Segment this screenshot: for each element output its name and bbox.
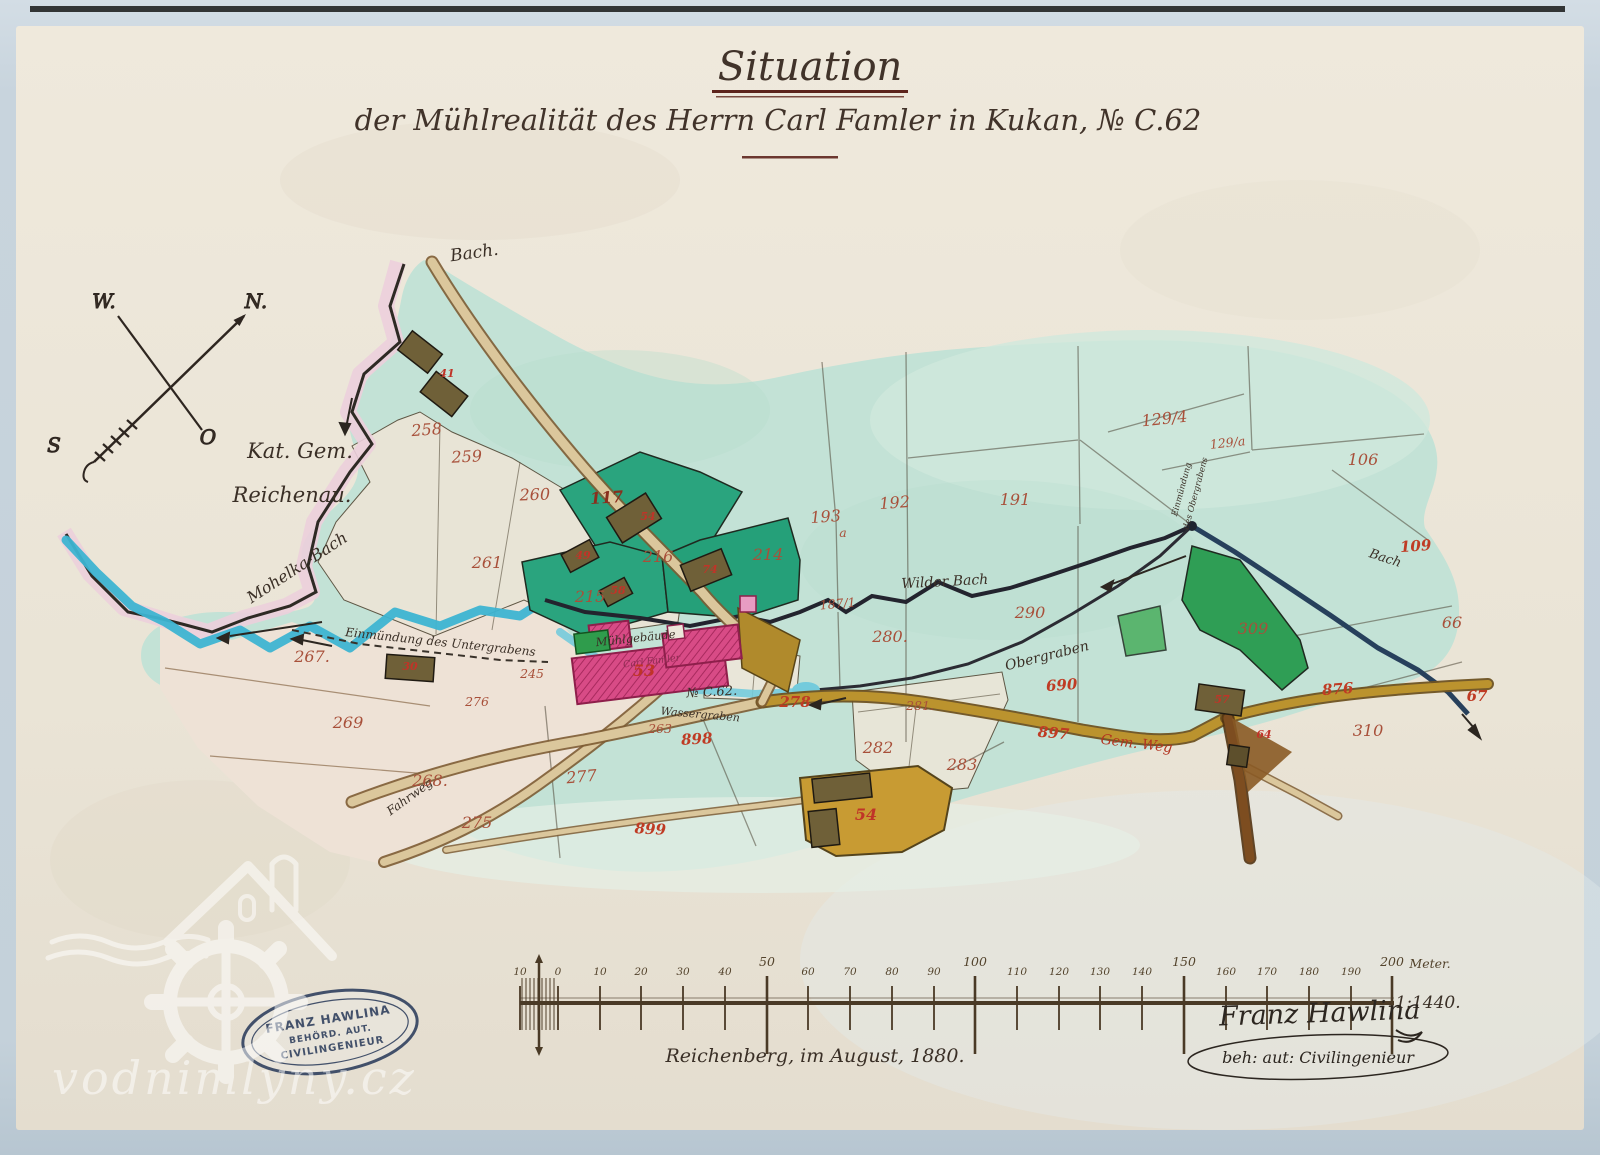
map-script-label: № C.62.	[685, 684, 737, 702]
parcel-number: 690	[1045, 675, 1078, 695]
scale-tick-label: 10	[513, 966, 527, 978]
parcel-number: 268.	[411, 771, 448, 790]
scale-tick-label: 80	[885, 966, 899, 978]
parcel-number: 876	[1321, 679, 1354, 699]
watermark-text: vodnimlyny.cz	[52, 1051, 417, 1105]
scale-tick-label: 140	[1132, 966, 1152, 978]
parcel-number: 258	[410, 419, 443, 440]
scale-tick-label: 40	[717, 966, 732, 978]
parcel-number: 897	[1037, 723, 1070, 744]
parcel-number: 281.	[905, 698, 934, 713]
parcel-number: 58	[610, 584, 626, 597]
parcel-number: 214	[752, 545, 784, 564]
parcel-number: 67	[1467, 687, 1488, 705]
parcel-number: 74	[702, 563, 717, 576]
title-line1: Situation	[718, 44, 903, 90]
scale-tick-label: 200	[1379, 954, 1404, 969]
parcel-number: 215	[574, 587, 606, 606]
parcel-number: 309	[1238, 619, 1269, 638]
scale-tick-label: 190	[1341, 966, 1361, 978]
parcel-number: 109	[1399, 536, 1432, 556]
parcel-number: a	[839, 525, 846, 540]
title-line2: der Mühlrealität des Herrn Carl Famler i…	[355, 103, 1202, 137]
parcel-number: 49	[575, 549, 591, 562]
parcel-number: 54	[855, 805, 877, 824]
parcel-number: 269	[332, 713, 364, 732]
scale-tick-label: 180	[1299, 966, 1319, 978]
parcel-number: 53	[633, 661, 655, 680]
scale-tick-label: 30	[676, 966, 690, 978]
compass-west-label: W.	[92, 289, 115, 313]
parcel-number: 267.	[293, 647, 330, 666]
parcel-number: 899	[634, 819, 667, 839]
parcel-number: 283	[946, 755, 978, 774]
parcel-number: 192	[879, 492, 911, 513]
scale-tick-label: 150	[1172, 954, 1196, 969]
scale-tick-label: 10	[593, 966, 607, 978]
scale-tick-label: 20	[633, 966, 648, 978]
parcel-number: 278	[778, 693, 811, 711]
parcel-number: 216	[642, 547, 674, 566]
parcel-number: 54	[640, 510, 655, 523]
parcel-number: 277	[564, 766, 598, 788]
scale-tick-label: 100	[963, 954, 987, 969]
signature-title: beh: aut: Civilingenieur	[1222, 1048, 1415, 1067]
parcel-number: 290	[1014, 603, 1046, 622]
parcel-number: 898	[681, 729, 714, 749]
scale-tick-label: 90	[927, 966, 941, 978]
scale-tick-label: 70	[843, 966, 857, 978]
scale-place-date: Reichenberg, im August, 1880.	[664, 1045, 964, 1067]
parcel-number: 193	[810, 506, 842, 527]
scale-tick-label: 60	[801, 966, 815, 978]
map-svg: W. N. O S Bach.Kat. Gem.Reichenau.Mohelk…	[0, 0, 1600, 1155]
parcel-number: 261	[471, 553, 503, 572]
compass-south-label: S	[47, 433, 61, 457]
parcel-number: 259	[450, 446, 482, 467]
parcel-number: 187/1	[819, 594, 856, 612]
parcel-number: 260	[518, 484, 550, 504]
parcel-number: 276	[464, 694, 489, 709]
parcel-number: 117	[589, 487, 624, 508]
map-script-label: Kat. Gem.	[246, 439, 353, 463]
parcel-number: 41	[439, 367, 454, 380]
parcel-number: 57	[1214, 693, 1230, 706]
parcel-number: 30	[402, 660, 418, 673]
parcel-number: 66	[1442, 613, 1462, 632]
scale-tick-label: 120	[1049, 966, 1069, 978]
scale-tick-label: 110	[1007, 966, 1027, 978]
parcel-number: 282	[862, 738, 894, 757]
parcel-number: 310	[1353, 721, 1384, 740]
parcel-number: 64	[1256, 728, 1271, 741]
compass-east-label: O	[200, 425, 216, 449]
scale-tick-label: 170	[1257, 966, 1277, 978]
scale-unit: Meter.	[1408, 956, 1450, 971]
parcel-number: 245	[519, 666, 544, 681]
compass-north-label: N.	[244, 289, 268, 313]
parcel-number: 275	[461, 813, 493, 832]
photo-frame-edge	[30, 6, 1565, 12]
scale-tick-label: 0	[555, 966, 562, 978]
parcel-number: 280.	[871, 627, 908, 646]
parcel-number: 106	[1348, 450, 1379, 469]
scanned-map-photo: W. N. O S Bach.Kat. Gem.Reichenau.Mohelk…	[0, 0, 1600, 1155]
map-script-label: Reichenau.	[232, 483, 352, 507]
scale-tick-label: 160	[1216, 966, 1236, 978]
scale-tick-label: 50	[759, 954, 775, 969]
parcel-number: 263	[647, 721, 672, 736]
parcel-number: 191	[1000, 490, 1031, 509]
scale-tick-label: 130	[1090, 966, 1110, 978]
